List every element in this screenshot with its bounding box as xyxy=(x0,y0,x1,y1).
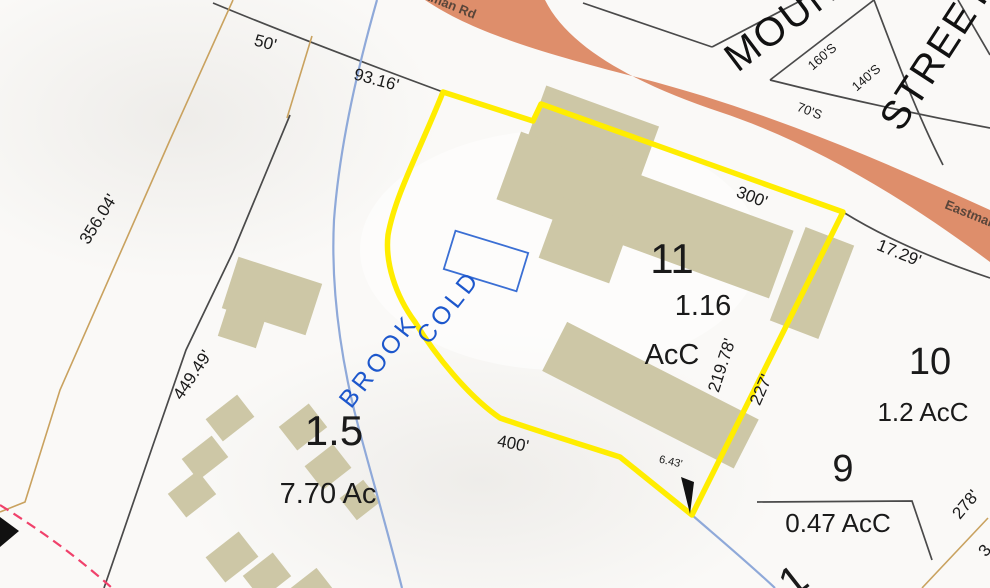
parcel-11-area: 1.16 xyxy=(675,290,731,322)
parcel-9-area: 0.47 AcC xyxy=(785,508,891,538)
parcel-11-area-unit: AcC xyxy=(645,339,700,371)
parcel-9-id: 9 xyxy=(832,448,853,490)
parcel-map-viewport: Eastman Rd Eastman Rd MOUNT STREET COLD … xyxy=(0,0,990,588)
parcel-map: Eastman Rd Eastman Rd MOUNT STREET COLD … xyxy=(0,0,990,588)
parcel-10-area: 1.2 AcC xyxy=(877,397,968,427)
parcel-11-id: 11 xyxy=(650,235,694,282)
parcel-10-id: 10 xyxy=(909,341,951,383)
parcel-1-5-area: 7.70 Ac xyxy=(280,478,377,510)
parcel-1-5-id: 1.5 xyxy=(305,407,363,454)
